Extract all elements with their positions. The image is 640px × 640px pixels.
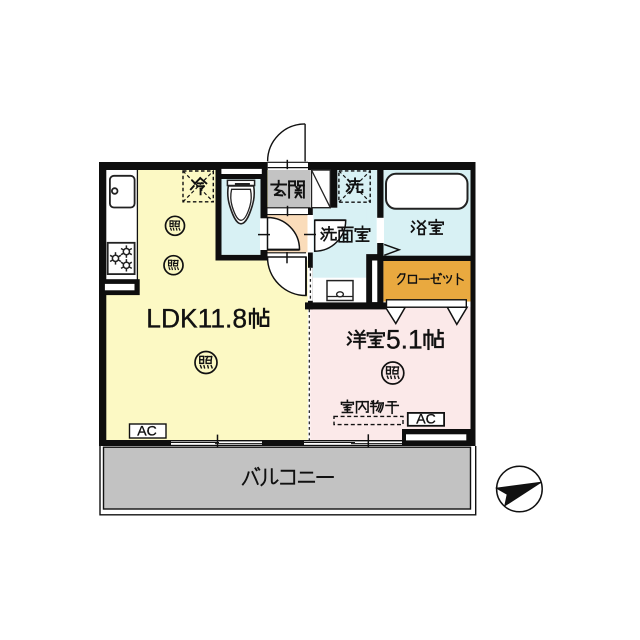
svg-text:AC: AC bbox=[416, 411, 435, 427]
svg-text:AC: AC bbox=[137, 423, 156, 439]
svg-text:5.1: 5.1 bbox=[386, 324, 423, 354]
svg-text:LDK11.8: LDK11.8 bbox=[146, 304, 247, 334]
